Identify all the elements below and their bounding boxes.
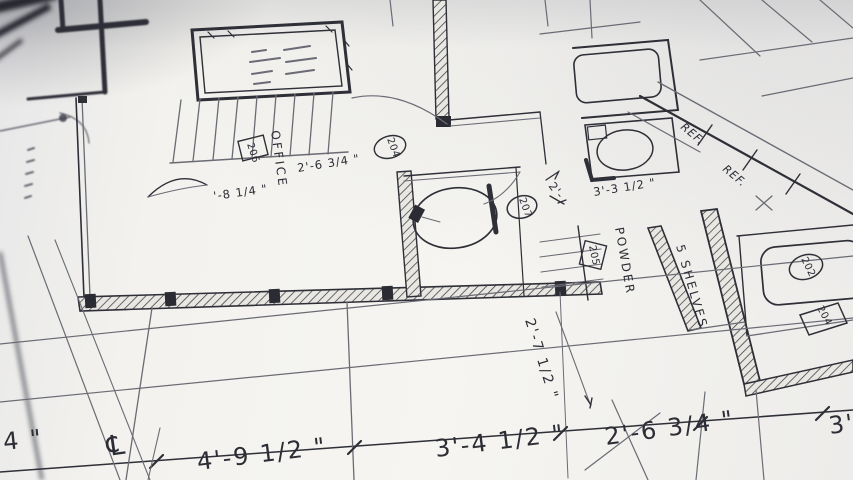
sink-fixture — [595, 127, 655, 174]
blueprint-photo: 206 204 207 205 202 204 OFFICE POWDER 5 … — [0, 0, 853, 480]
dim-hall-partial: 2'- — [546, 179, 568, 202]
column-marker — [382, 286, 394, 301]
column-marker — [269, 289, 281, 304]
closet-walls — [648, 209, 853, 396]
office-label: OFFICE — [268, 129, 290, 188]
floor-plan-drawing: 206 204 207 205 202 204 OFFICE POWDER 5 … — [0, 0, 853, 480]
centerline-symbol: ℄ — [103, 428, 126, 463]
dim-stair-height: 2'-7 1/2 " — [521, 316, 561, 402]
door-swing-arc — [352, 96, 447, 124]
office-door-swing — [148, 179, 207, 197]
dim-bottom-b: 3'-4 1/2 " — [433, 419, 566, 463]
upper-left-walls — [0, 0, 146, 198]
top-edge-lines — [390, 0, 853, 96]
stair-landing-room — [192, 22, 352, 100]
dim-bottom-right-partial: 3' — [827, 409, 853, 440]
tag-202: 202 — [798, 255, 817, 278]
arrowhead — [585, 396, 592, 408]
bathroom — [397, 167, 524, 297]
column-marker — [85, 294, 97, 309]
dim-office-left: '-8 1/4 " — [212, 181, 268, 202]
dim-bottom-c: 2'-6 3/4 " — [603, 405, 736, 451]
tag-205: 205 — [586, 244, 601, 266]
tag-206: 206 — [244, 142, 261, 165]
left-wall — [76, 96, 90, 298]
tub-fixture — [573, 48, 662, 103]
kitchen-counters — [628, 82, 853, 214]
tag-204-box: 204 — [814, 304, 833, 327]
x-marker — [756, 196, 772, 210]
toilet-fixture — [409, 182, 501, 253]
ref-upper-label: REF. — [678, 120, 707, 147]
illegible-margin-notes — [25, 148, 34, 198]
illegible-stair-notes — [250, 46, 316, 84]
dim-bottom-a: 4'-9 1/2 " — [195, 432, 328, 476]
corner-blur-strokes — [0, 0, 56, 480]
powder-label: POWDER — [612, 226, 638, 296]
column-marker — [165, 292, 177, 307]
dim-bottom-partial: 4 " — [2, 424, 45, 456]
tag-204-door: 204 — [384, 136, 401, 159]
